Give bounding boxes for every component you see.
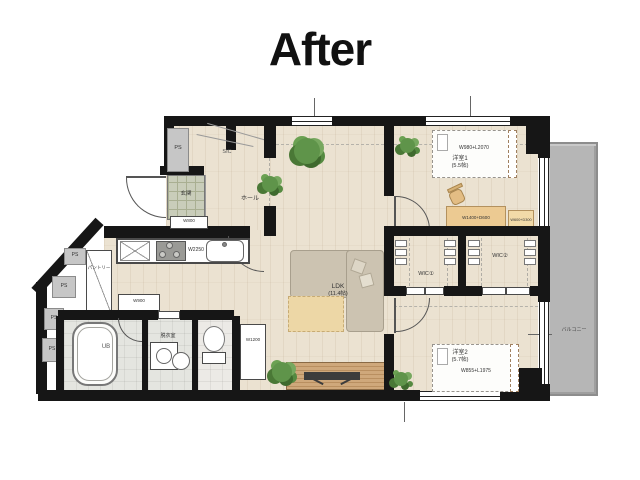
- ldk-size-label: (11.4帖): [314, 292, 362, 298]
- ceiling-line: [276, 144, 384, 145]
- pantry-label: パントリー: [85, 266, 113, 271]
- plant: [394, 372, 408, 386]
- washroom-sliding-door: [158, 311, 180, 319]
- wall: [56, 316, 64, 394]
- hanging-clothes: [468, 249, 480, 256]
- sic-label: SIC: [212, 150, 242, 156]
- window: [292, 116, 332, 126]
- bedroom2-door-leaf: [394, 298, 396, 333]
- wic1-label: WIC①: [408, 272, 444, 278]
- hanging-clothes: [444, 258, 456, 265]
- wic2-sliding-door: [506, 287, 530, 295]
- dimension-line: [404, 402, 405, 422]
- wall: [142, 316, 148, 392]
- wall: [264, 206, 276, 236]
- closet-rod: [481, 238, 482, 286]
- washroom-label: 脱衣室: [148, 334, 188, 339]
- dimension-line: [470, 96, 471, 116]
- shoe-cabinet-label: W800: [170, 219, 208, 224]
- hanging-clothes: [524, 249, 536, 256]
- hanging-clothes: [395, 249, 407, 256]
- ps-label: PS: [167, 146, 189, 152]
- wall: [226, 116, 236, 150]
- window: [426, 116, 510, 126]
- wic1-sliding-door: [406, 287, 425, 295]
- ldk-label: LDK: [318, 284, 358, 291]
- kitchen-counter-label: W2250: [184, 248, 208, 253]
- wall: [384, 334, 394, 392]
- plant: [400, 138, 415, 153]
- floor-plan: After バルコニー PS PS PS PS PS SIC 玄関: [0, 0, 640, 480]
- wall-corner: [526, 126, 550, 154]
- bedroom1-label: 洋室1: [442, 156, 478, 162]
- wall: [38, 390, 420, 401]
- bed1-size-label: W980+L2070: [446, 146, 502, 151]
- wall: [332, 116, 426, 126]
- burner: [173, 251, 180, 258]
- washing-machine-drum: [156, 348, 172, 364]
- wash-basin: [172, 352, 190, 370]
- wall: [384, 126, 394, 196]
- bed2-size-label: W855+L1975: [448, 369, 504, 374]
- storage-cabinet-label: W1200: [240, 338, 266, 343]
- wall-corner: [518, 368, 542, 392]
- wall: [232, 316, 240, 392]
- wall: [192, 316, 198, 392]
- wic2-sliding-door: [482, 287, 506, 295]
- entrance-label: 玄関: [170, 192, 202, 198]
- page-title: After: [0, 22, 640, 78]
- bed-headboard: [508, 130, 517, 178]
- wall: [530, 286, 538, 296]
- wall: [264, 126, 276, 158]
- bedroom2-label: 洋室2: [442, 350, 478, 356]
- wic2-label: WIC②: [482, 254, 518, 260]
- bedroom1-size-label: (5.5帖): [440, 164, 480, 170]
- bath-label: UB: [94, 344, 118, 350]
- ps-label: PS: [64, 253, 86, 258]
- bathtub-inner: [77, 327, 113, 381]
- wall: [180, 310, 234, 320]
- entrance-door-arc: [126, 178, 166, 218]
- balcony-area: [546, 142, 598, 396]
- pantry-cabinet: [86, 250, 112, 314]
- hanging-clothes: [444, 249, 456, 256]
- window: [420, 391, 500, 401]
- hanging-clothes: [395, 258, 407, 265]
- wall: [538, 226, 550, 302]
- refrigerator-space: [120, 241, 150, 261]
- hanging-clothes: [444, 240, 456, 247]
- entrance-step-line: [205, 175, 206, 220]
- bed-headboard: [510, 344, 519, 392]
- window: [539, 158, 549, 226]
- plant: [262, 176, 278, 192]
- hanging-clothes: [524, 258, 536, 265]
- bedroom2-size-label: (5.7帖): [440, 358, 480, 364]
- hanging-clothes: [524, 240, 536, 247]
- toilet-bowl: [203, 326, 225, 352]
- balcony-label: バルコニー: [552, 328, 596, 333]
- ps-label: PS: [52, 284, 76, 289]
- dimension-line: [314, 98, 315, 116]
- faucet: [222, 242, 227, 247]
- shelf-label: W600+D300: [508, 218, 534, 222]
- burner: [159, 251, 166, 258]
- kitchen-cabinet-label: W900: [118, 299, 160, 304]
- closet-rod: [409, 238, 410, 286]
- hanging-clothes: [395, 240, 407, 247]
- desk-label: W1400+D600: [448, 216, 504, 221]
- storage-cabinet: [240, 324, 266, 380]
- plant: [294, 138, 320, 164]
- wall: [444, 286, 482, 296]
- hanging-clothes: [468, 240, 480, 247]
- toilet-tank: [202, 352, 226, 364]
- hanging-clothes: [468, 258, 480, 265]
- entrance-door-leaf: [126, 176, 166, 178]
- plant: [272, 362, 292, 382]
- wic1-sliding-door: [425, 287, 444, 295]
- rug: [288, 296, 344, 332]
- burner: [166, 242, 173, 249]
- hall-label: ホール: [232, 196, 268, 202]
- wall: [384, 286, 406, 296]
